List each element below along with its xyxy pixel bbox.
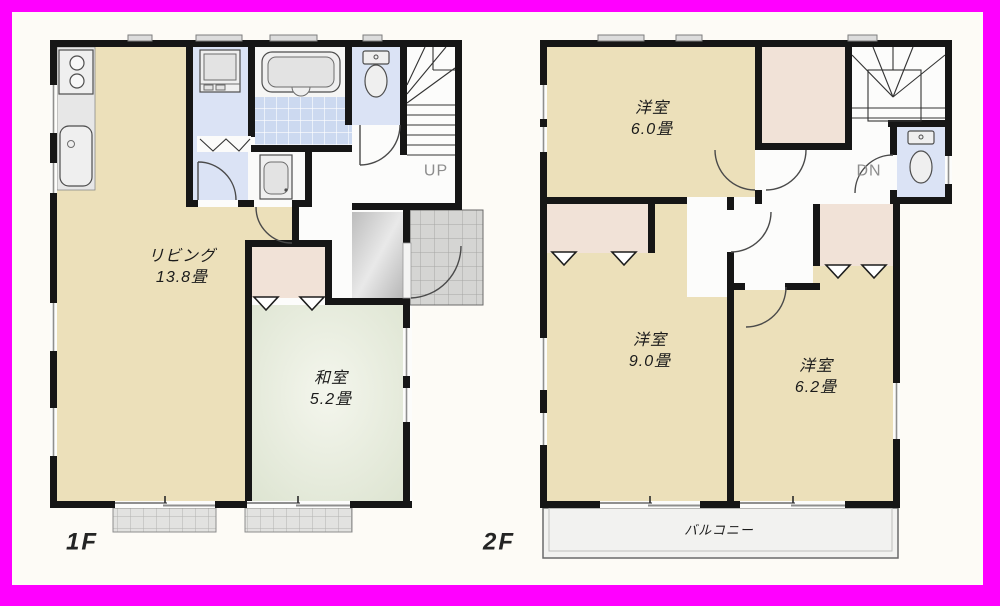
kitchen-sink-icon	[60, 126, 92, 186]
washitsu-room-name: 和室	[310, 369, 352, 390]
wall	[305, 145, 312, 207]
terrace-step-right	[245, 508, 352, 532]
floorplan-drawing	[0, 0, 1000, 606]
yoshitsu90-size: 9.0畳	[629, 352, 671, 373]
stairs-up-label: UP	[424, 162, 448, 183]
yoshitsu60-label: 洋室 6.0畳	[631, 99, 673, 141]
balcony-label: バルコニー	[684, 523, 754, 540]
floor2-tag: 2F	[483, 526, 515, 557]
washitsu-room-size: 5.2畳	[310, 390, 352, 411]
floor1-plan	[50, 35, 483, 532]
yoshitsu62-label: 洋室 6.2畳	[795, 357, 837, 399]
wall	[50, 501, 412, 508]
wall	[455, 40, 462, 210]
wall	[325, 240, 332, 305]
yoshitsu62-name: 洋室	[795, 357, 837, 378]
washing-machine-icon	[200, 50, 240, 92]
yoshitsu90-label: 洋室 9.0畳	[629, 331, 671, 373]
entrance-door-leaf	[403, 243, 411, 298]
wall	[186, 40, 193, 207]
toilet-icon-2f	[908, 131, 934, 183]
wall	[248, 40, 255, 137]
wall	[890, 127, 897, 155]
wall	[292, 200, 299, 247]
stove-icon	[59, 50, 93, 94]
door-gap	[198, 200, 238, 207]
wall	[245, 240, 252, 501]
bathtub-icon	[262, 52, 340, 96]
wall	[893, 197, 900, 508]
yoshitsu60-name: 洋室	[631, 99, 673, 120]
door-gap	[755, 150, 762, 190]
wall	[890, 190, 897, 204]
yoshitsu62-size: 6.2畳	[795, 378, 837, 399]
floorplan-canvas: リビング 13.8畳 和室 5.2畳 UP 1F 洋室 6.0畳 洋室 9.0畳…	[0, 0, 1000, 606]
door-gap	[254, 200, 292, 207]
living-room-name: リビング	[148, 247, 216, 268]
wall	[325, 298, 410, 305]
genkan-entry-floor	[352, 212, 403, 305]
wall	[352, 203, 462, 210]
room-living-doorway	[248, 207, 292, 243]
wall	[813, 204, 820, 266]
toilet-icon-1f	[363, 51, 389, 97]
wall	[400, 40, 407, 155]
closet-1f	[252, 247, 325, 298]
wall	[403, 210, 410, 243]
living-room-size: 13.8畳	[148, 268, 216, 289]
room-yoshitsu90-floor2	[687, 297, 727, 501]
closet-2f-a	[762, 47, 845, 143]
terrace-step-left	[113, 508, 216, 532]
floor1-tag: 1F	[66, 526, 98, 557]
wall	[547, 197, 687, 204]
wall	[762, 143, 852, 150]
wall	[845, 40, 852, 150]
wall	[248, 145, 352, 152]
door-gap	[727, 210, 734, 252]
yoshitsu90-name: 洋室	[629, 331, 671, 352]
wall	[540, 501, 900, 508]
wall	[648, 204, 655, 253]
closet-2f-c	[820, 204, 893, 266]
stairs-down-label: DN	[856, 162, 881, 183]
closet-2f-b	[547, 204, 648, 253]
washitsu-room-label: 和室 5.2畳	[310, 369, 352, 411]
washbasin-icon	[260, 155, 292, 199]
wall	[345, 40, 352, 125]
door-gap	[745, 283, 785, 290]
wall	[893, 197, 952, 204]
bathroom-tile-floor	[255, 97, 352, 145]
entrance-porch-tiles	[410, 210, 483, 305]
floor2-plan	[540, 35, 952, 558]
living-room-label: リビング 13.8畳	[148, 247, 216, 289]
yoshitsu60-size: 6.0畳	[631, 120, 673, 141]
